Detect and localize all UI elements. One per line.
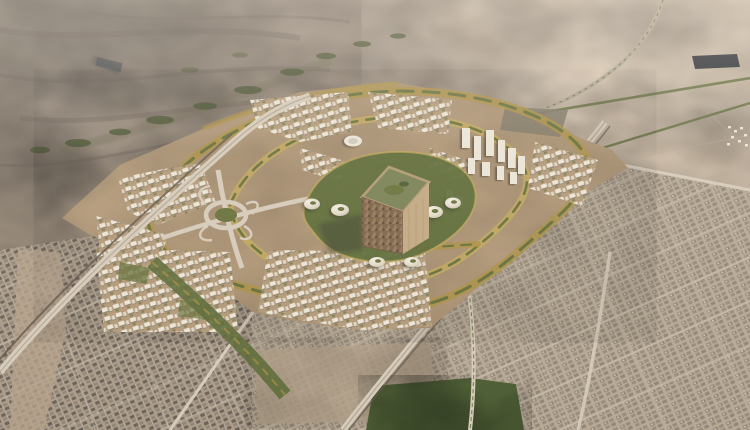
atmosphere-haze [0,0,750,430]
aerial-render: Aerial desert-city render: giant cube to… [0,0,750,430]
aerial-photo-canvas: Aerial desert-city render: giant cube to… [0,0,750,430]
